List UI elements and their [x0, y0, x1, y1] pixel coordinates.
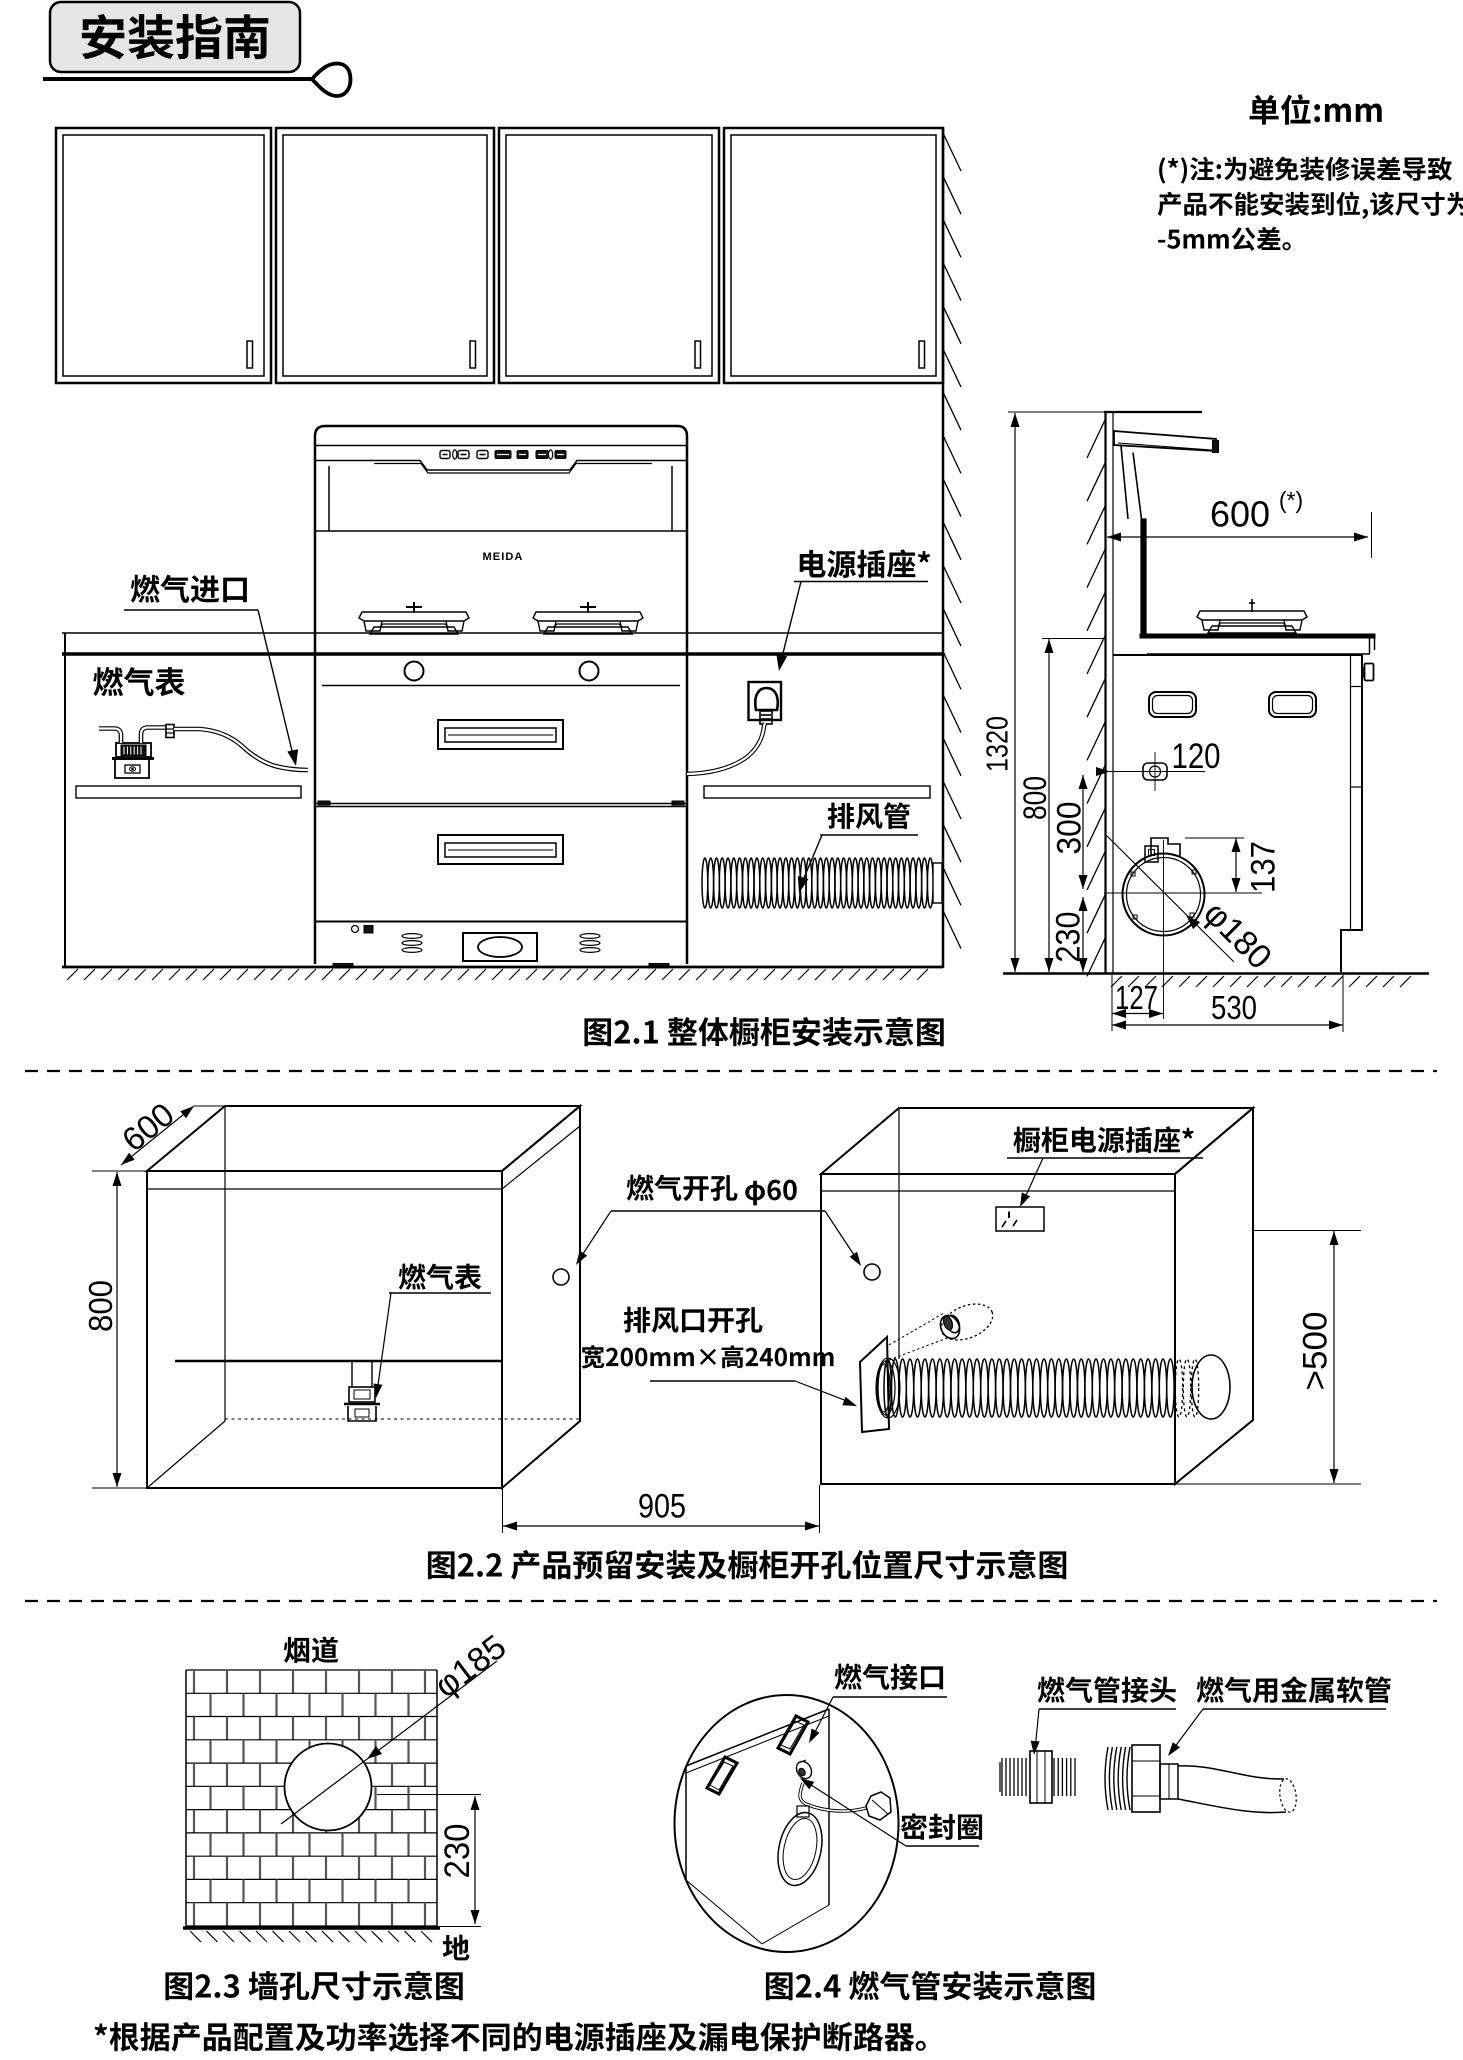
svg-text:300: 300 — [1051, 802, 1089, 855]
svg-text:120: 120 — [1172, 737, 1221, 776]
svg-text:530: 530 — [1211, 989, 1257, 1026]
svg-text:230: 230 — [438, 1824, 477, 1879]
svg-text:1320: 1320 — [980, 716, 1015, 772]
svg-text:MEIDA: MEIDA — [483, 551, 524, 563]
svg-text:905: 905 — [638, 1488, 686, 1526]
svg-text:137: 137 — [1245, 841, 1283, 893]
svg-text:127: 127 — [1115, 979, 1158, 1016]
svg-text:230: 230 — [1050, 912, 1088, 963]
svg-text:600: 600 — [1210, 493, 1270, 534]
svg-text:>500: >500 — [1297, 1312, 1335, 1391]
svg-text:800: 800 — [1017, 776, 1053, 820]
svg-text:(*): (*) — [1279, 487, 1303, 513]
svg-text:800: 800 — [82, 1280, 119, 1332]
